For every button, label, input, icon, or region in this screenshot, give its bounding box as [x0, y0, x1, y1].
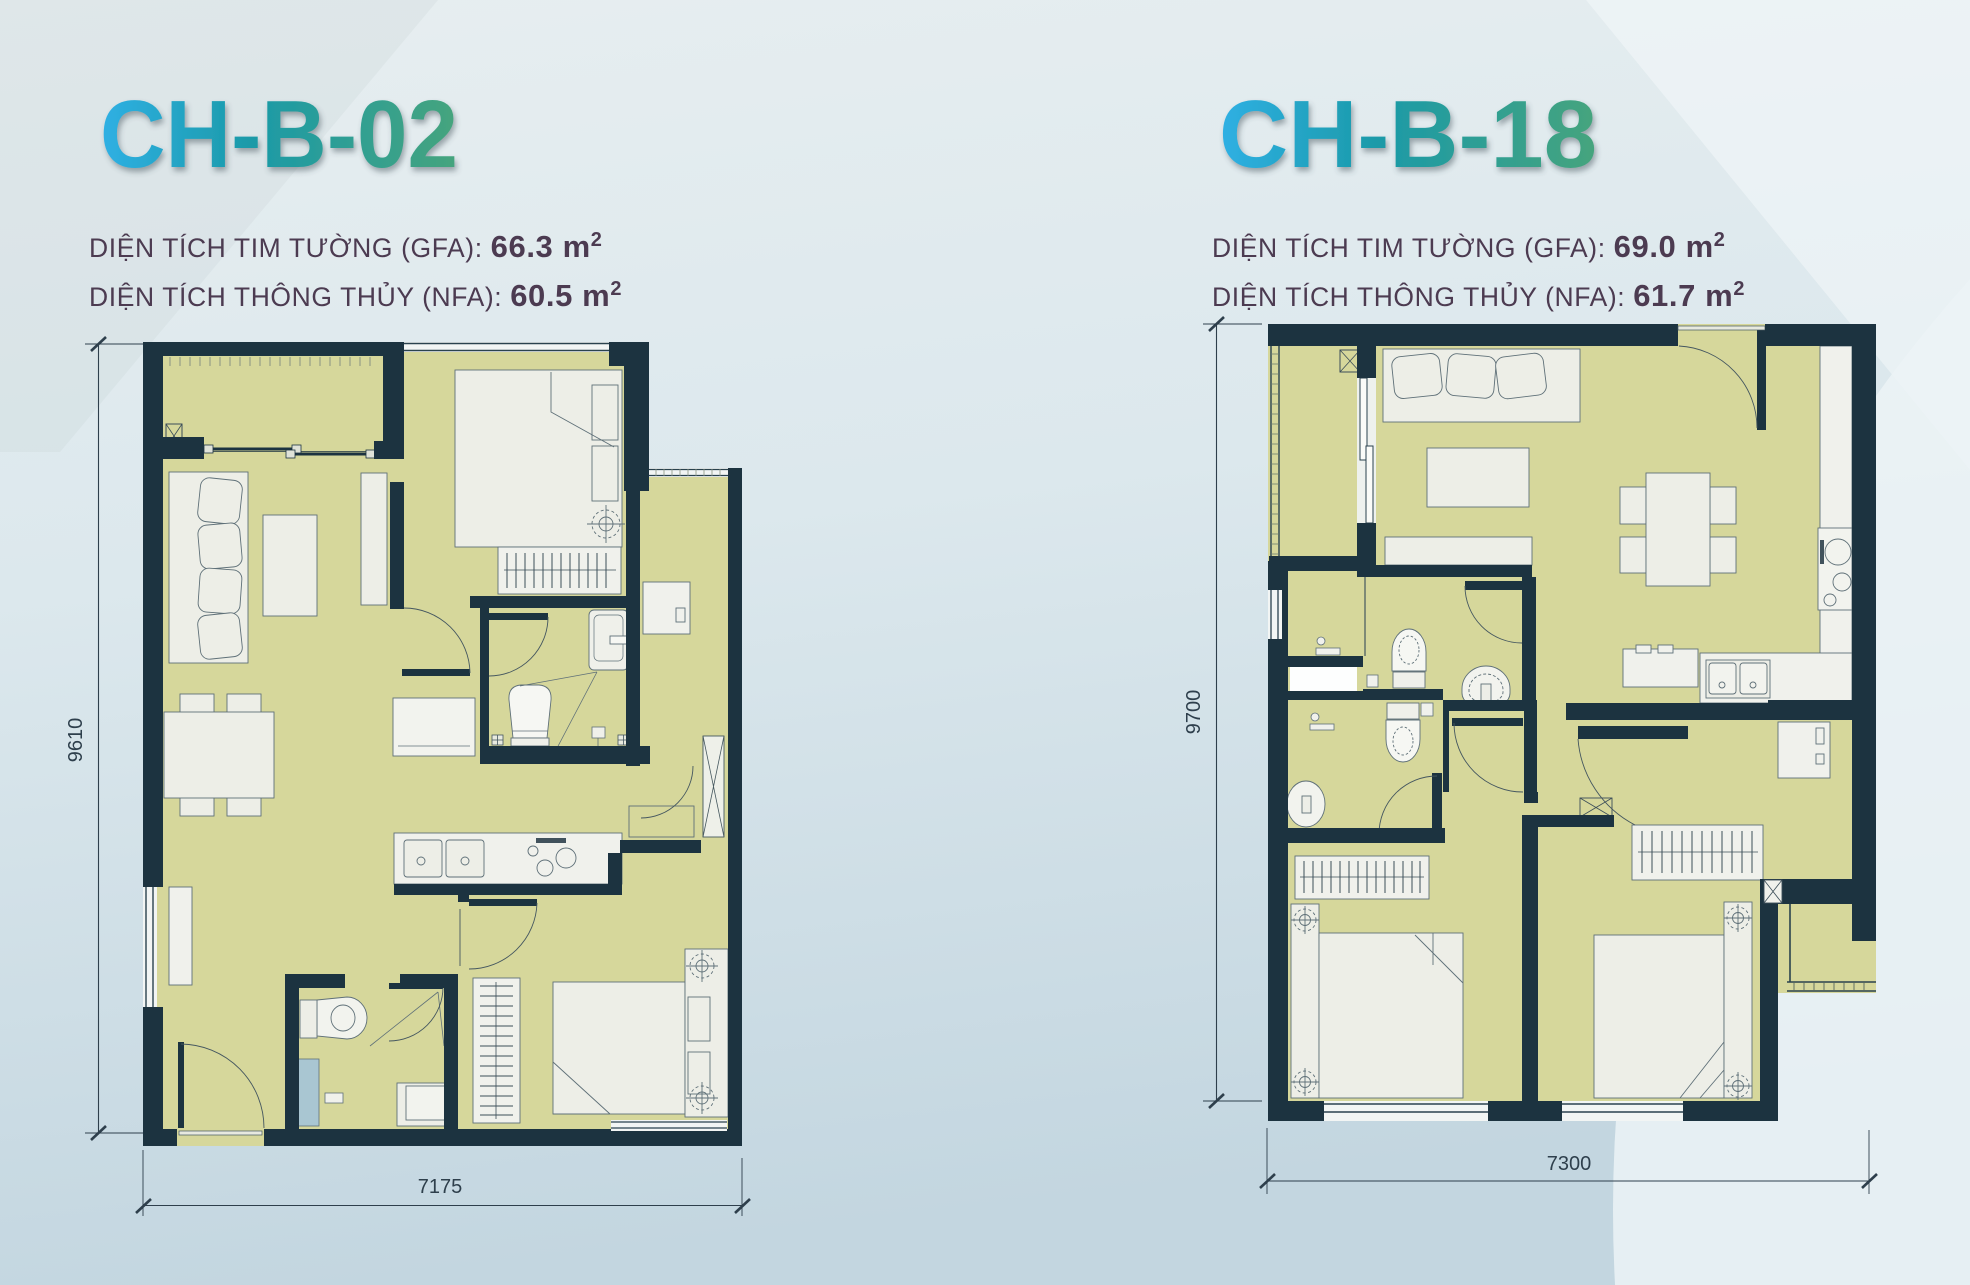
svg-text:9610: 9610: [65, 718, 87, 763]
svg-text:DIỆN TÍCH THÔNG THỦY (NFA): 60: DIỆN TÍCH THÔNG THỦY (NFA): 60.5 m2: [89, 278, 622, 313]
svg-text:CH-B-02: CH-B-02: [100, 81, 458, 188]
svg-text:7175: 7175: [418, 1176, 463, 1198]
svg-text:DIỆN TÍCH TIM TƯỜNG (GFA): 69.: DIỆN TÍCH TIM TƯỜNG (GFA): 69.0 m2: [1212, 229, 1726, 264]
svg-text:DIỆN TÍCH THÔNG THỦY (NFA): 61: DIỆN TÍCH THÔNG THỦY (NFA): 61.7 m2: [1212, 278, 1745, 313]
svg-text:DIỆN TÍCH TIM TƯỜNG (GFA): 66.: DIỆN TÍCH TIM TƯỜNG (GFA): 66.3 m2: [89, 229, 603, 264]
svg-text:7300: 7300: [1547, 1153, 1592, 1175]
svg-text:9700: 9700: [1183, 690, 1205, 735]
svg-text:CH-B-18: CH-B-18: [1219, 81, 1597, 188]
